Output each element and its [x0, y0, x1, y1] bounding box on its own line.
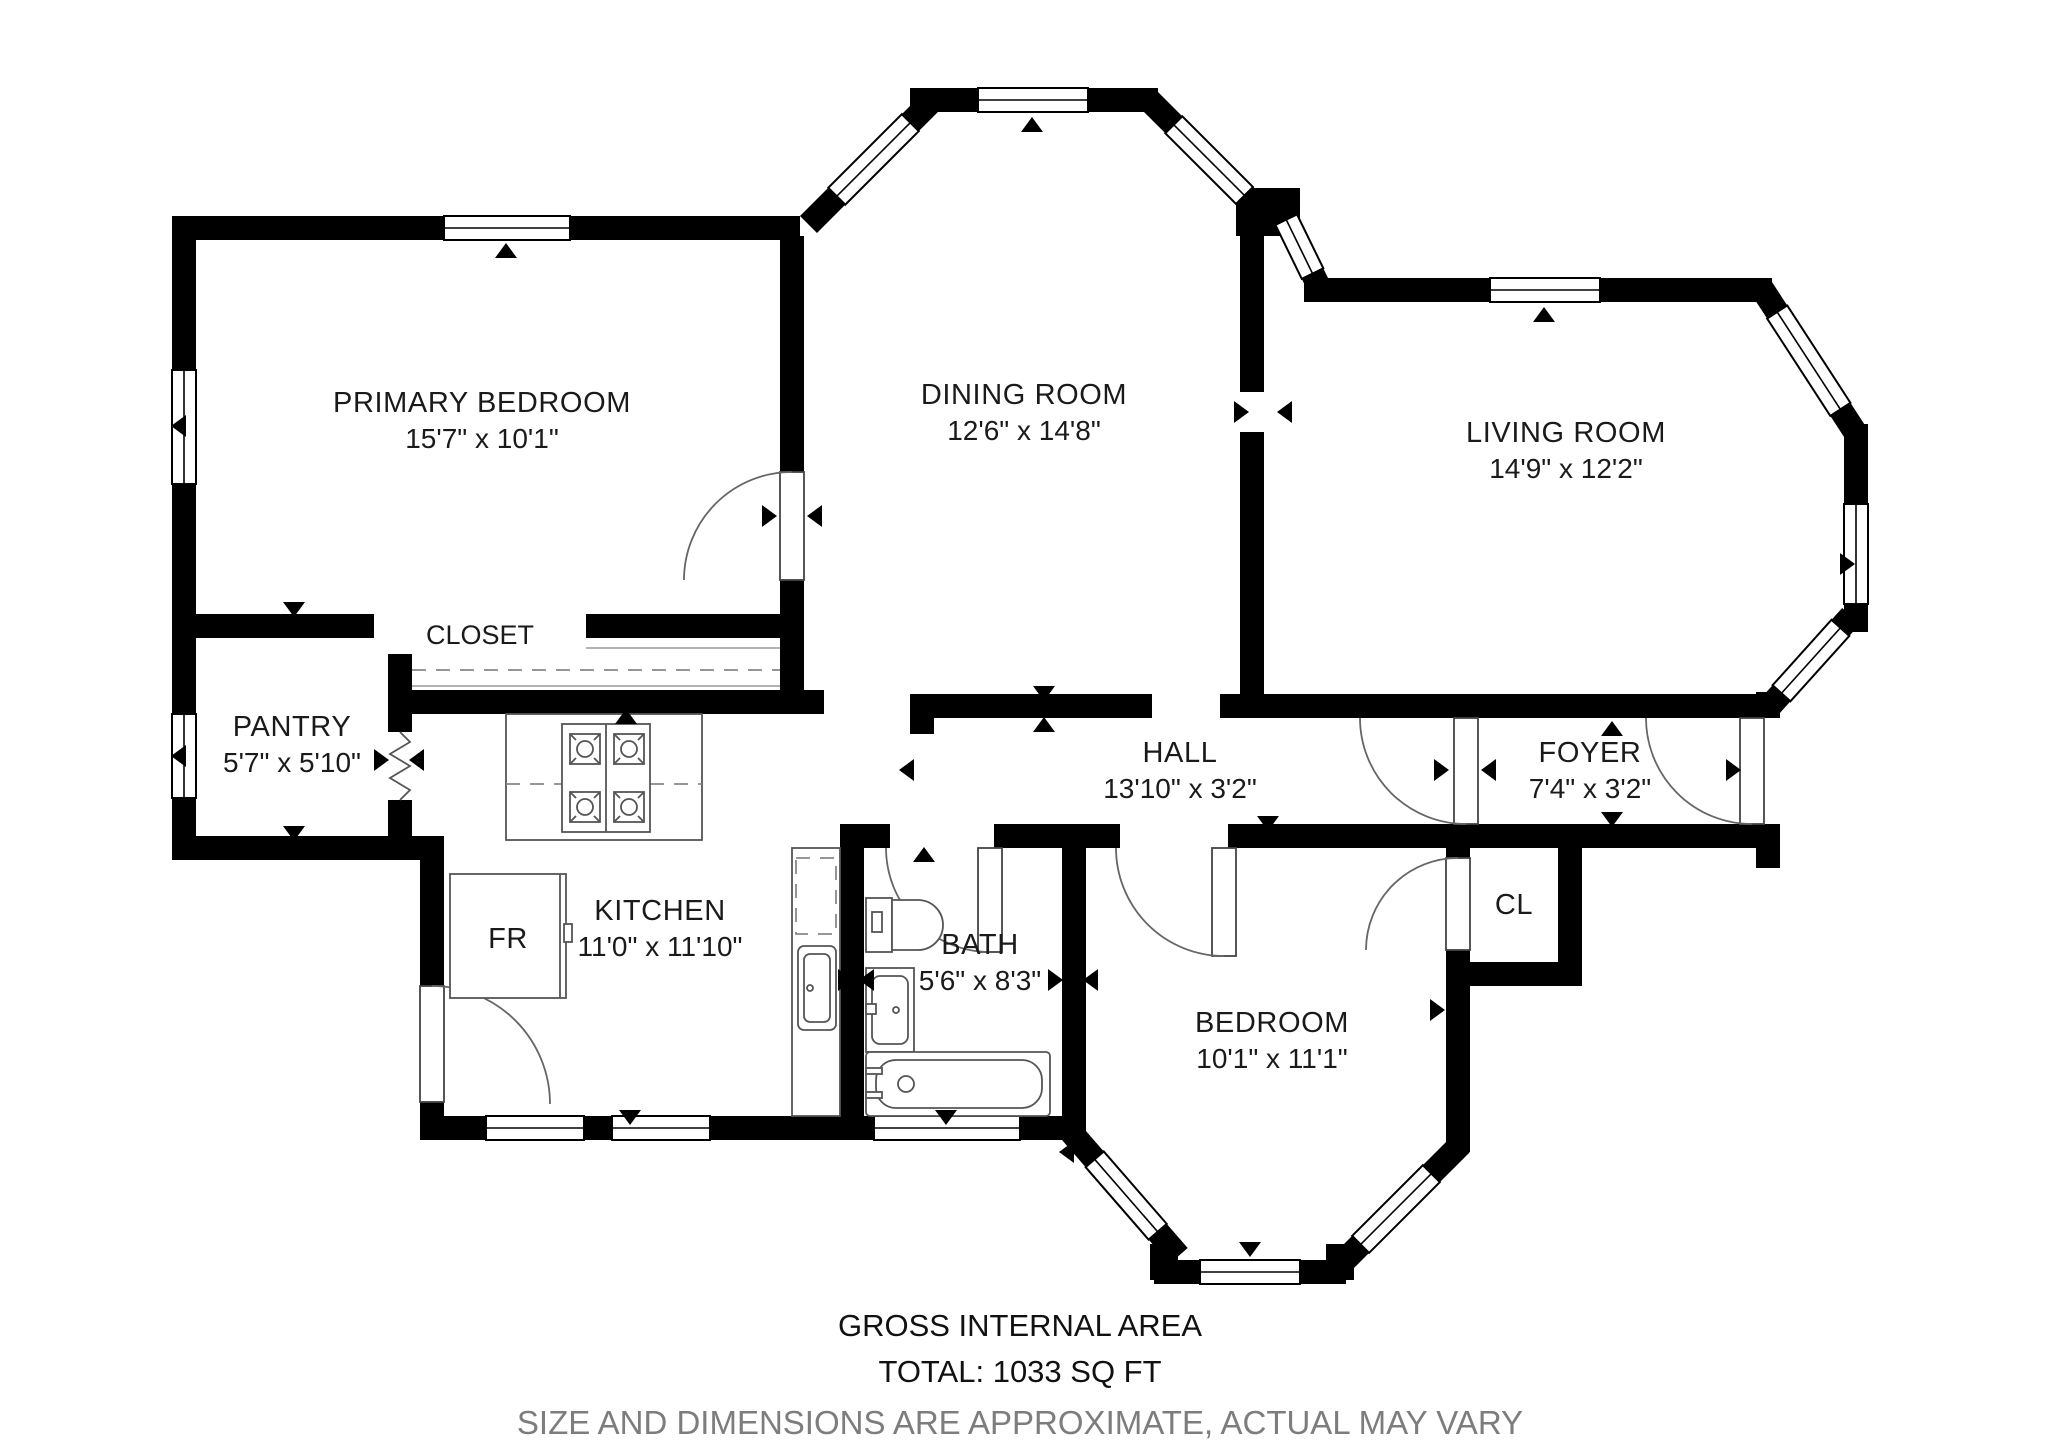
- marker-icon: [1533, 307, 1555, 322]
- door-primary-bedroom: [684, 472, 804, 580]
- floor-plan-canvas: PRIMARY BEDROOM 15'7" x 10'1" DINING ROO…: [0, 0, 2048, 1447]
- room-label-foyer: FOYER: [1539, 737, 1642, 769]
- marker-icon: [1277, 401, 1292, 423]
- window-living-top: [1490, 278, 1600, 302]
- footer-disclaimer: SIZE AND DIMENSIONS ARE APPROXIMATE, ACT…: [517, 1404, 1523, 1441]
- door-entry: [1646, 718, 1764, 824]
- dining-bay-left-wall: [800, 92, 941, 233]
- footer: GROSS INTERNAL AREA TOTAL: 1033 SQ FT SI…: [517, 1308, 1523, 1441]
- window-kitchen-bottom-1: [486, 1116, 584, 1140]
- marker-icon: [1726, 759, 1741, 781]
- room-label-pantry: PANTRY: [233, 711, 352, 743]
- marker-icon: [1430, 999, 1445, 1021]
- footer-total: TOTAL: 1033 SQ FT: [878, 1354, 1161, 1389]
- marker-icon: [1048, 969, 1063, 991]
- room-label-closet: CLOSET: [426, 620, 534, 650]
- room-label-dining-room: DINING ROOM: [921, 379, 1127, 411]
- room-dims-living-room: 14'9" x 12'2": [1489, 453, 1643, 484]
- marker-icon: [1239, 1242, 1261, 1257]
- window-primary-bedroom-top: [444, 216, 570, 240]
- room-label-kitchen: KITCHEN: [594, 895, 726, 927]
- door-kitchen: [420, 986, 550, 1104]
- window-bedroom-bay-bottom: [1200, 1260, 1300, 1284]
- room-dims-pantry: 5'7" x 5'10": [223, 747, 361, 778]
- room-label-bath: BATH: [941, 929, 1019, 961]
- marker-icon: [1234, 401, 1249, 423]
- room-label-cl: CL: [1495, 889, 1533, 921]
- living-bay-upper-wall: [1752, 282, 1866, 439]
- marker-icon: [1033, 717, 1055, 732]
- room-dims-bedroom: 10'1" x 11'1": [1196, 1043, 1347, 1074]
- kitchen-sink-icon: [798, 946, 836, 1030]
- fridge-label: FR: [488, 923, 528, 955]
- door-bedroom: [1116, 848, 1236, 956]
- toilet-icon: [866, 898, 943, 952]
- door-cl-closet: [1366, 858, 1470, 950]
- room-dims-dining-room: 12'6" x 14'8": [947, 415, 1101, 446]
- room-dims-bath: 5'6" x 8'3": [919, 965, 1041, 996]
- room-label-primary-bedroom: PRIMARY BEDROOM: [333, 387, 631, 419]
- room-label-bedroom: BEDROOM: [1195, 1007, 1349, 1039]
- bedroom-bay-right-wall: [1321, 1136, 1469, 1284]
- dining-bay-right-wall: [1137, 88, 1281, 232]
- marker-icon: [1434, 759, 1449, 781]
- bedroom-bay-left-wall: [1062, 1124, 1188, 1264]
- marker-icon: [899, 759, 914, 781]
- marker-icon: [495, 243, 517, 258]
- marker-icon: [374, 749, 389, 771]
- marker-icon: [762, 505, 777, 527]
- marker-icon: [1601, 721, 1623, 736]
- opening-zigzag-pantry: [390, 732, 410, 800]
- room-label-hall: HALL: [1143, 737, 1218, 769]
- stove-icon: [562, 724, 650, 832]
- window-dining-top: [978, 88, 1088, 112]
- door-hall-foyer: [1360, 718, 1478, 824]
- bathtub-icon: [866, 1052, 1050, 1116]
- room-label-living-room: LIVING ROOM: [1466, 417, 1666, 449]
- room-dims-foyer: 7'4" x 3'2": [1529, 773, 1651, 804]
- room-dims-hall: 13'10" x 3'2": [1103, 773, 1257, 804]
- window-living-right: [1844, 504, 1868, 604]
- marker-icon: [1481, 759, 1496, 781]
- room-dims-primary-bedroom: 15'7" x 10'1": [405, 423, 559, 454]
- living-bay-lower-wall: [1759, 608, 1860, 716]
- marker-icon: [409, 749, 424, 771]
- footer-area-title: GROSS INTERNAL AREA: [838, 1308, 1202, 1343]
- marker-icon: [1021, 117, 1043, 132]
- marker-icon: [913, 847, 935, 862]
- room-dims-kitchen: 11'0" x 11'10": [578, 931, 743, 962]
- marker-icon: [807, 505, 822, 527]
